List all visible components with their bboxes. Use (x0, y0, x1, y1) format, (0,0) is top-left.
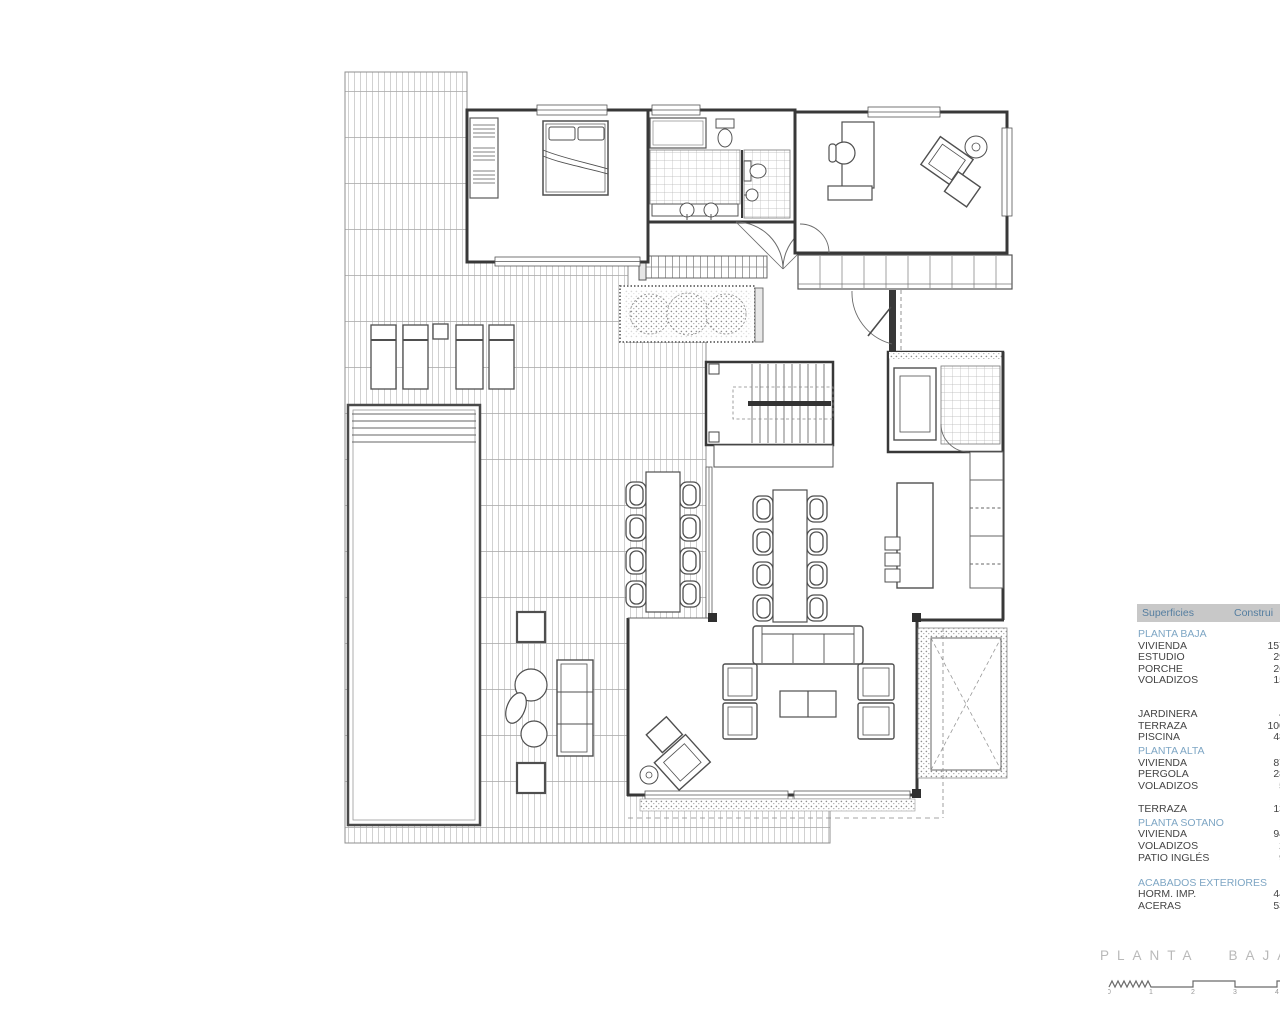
double-bed (543, 121, 608, 195)
scale-number: 4 (1275, 989, 1279, 996)
surface-value: 9 (1137, 853, 1280, 865)
toilet (716, 119, 734, 147)
swimming-pool (348, 405, 480, 825)
surfaces-item-row: TERRAZA13 (1137, 804, 1280, 816)
gate-door-arc (852, 291, 892, 344)
pergola-walkway-strip (639, 254, 767, 280)
surfaces-item-row: VOLADIZOS2 (1137, 841, 1280, 853)
surfaces-spacer-row (1137, 864, 1280, 875)
surface-value: 48 (1137, 732, 1280, 744)
surfaces-col-header: Superficies (1142, 604, 1234, 622)
pantry-laundry (888, 352, 1003, 452)
kitchen-counter (970, 452, 1003, 588)
surfaces-rows: PLANTA BAJAVIVIENDA157ESTUDIO29PORCHE26V… (1137, 629, 1280, 912)
reading-chair (640, 717, 710, 790)
porch-strip (798, 255, 1012, 289)
surfaces-item-row: JARDINERA4 (1137, 709, 1280, 721)
surface-value: 13 (1137, 804, 1280, 816)
surfaces-section-row: PLANTA BAJA (1137, 629, 1280, 641)
surface-label: PLANTA BAJA (1138, 629, 1207, 641)
graphic-scale-bar: 01234 (1108, 976, 1280, 1002)
scale-number: 1 (1149, 989, 1153, 996)
surfaces-item-row: ACERAS53 (1137, 901, 1280, 913)
surfaces-item-row: VOLADIZOS5 (1137, 781, 1280, 793)
surface-value: 5 (1137, 781, 1280, 793)
kitchen-island (885, 483, 933, 588)
surfaces-spacer-row (1137, 687, 1280, 698)
surface-value: 4 (1137, 709, 1280, 721)
dining-set (753, 490, 827, 622)
page: Superficies Construi PLANTA BAJAVIVIENDA… (0, 0, 1280, 1024)
outdoor-dining-table (646, 472, 680, 612)
surface-value: 53 (1137, 901, 1280, 913)
scale-number: 0 (1108, 989, 1111, 996)
floor-plan-drawing (0, 0, 1280, 1024)
surfaces-table-header: Superficies Construi (1137, 604, 1280, 622)
desk-chair (829, 142, 855, 164)
surfaces-spacer-row (1137, 793, 1280, 804)
sidewalk-strip (640, 799, 915, 811)
patio-void-x (918, 628, 1007, 818)
coffee-table (780, 691, 836, 717)
built-col-header: Construi (1234, 604, 1280, 622)
scale-bar-drawing (1108, 976, 1280, 989)
living-windows (645, 791, 910, 799)
bedroom-suite-block (467, 105, 830, 269)
sofa (753, 626, 863, 664)
wardrobe (470, 118, 498, 198)
glass-wall-west (706, 467, 712, 618)
scale-number: 3 (1233, 989, 1237, 996)
surfaces-table: Superficies Construi PLANTA BAJAVIVIENDA… (1137, 604, 1280, 912)
surfaces-item-row: PATIO INGLÉS9 (1137, 853, 1280, 865)
staircase (706, 362, 833, 467)
appliance (894, 368, 936, 440)
surface-value: 15 (1137, 675, 1280, 687)
dining-table (773, 490, 807, 622)
surface-value: 2 (1137, 841, 1280, 853)
surfaces-item-row: PISCINA48 (1137, 732, 1280, 744)
entry-court (852, 290, 901, 352)
surfaces-item-row: VOLADIZOS15 (1137, 675, 1280, 687)
planter-shrubs (630, 293, 746, 335)
study-block (795, 107, 1012, 289)
plan-title: PLANTA BAJA (1100, 948, 1280, 963)
scale-number: 2 (1191, 989, 1195, 996)
gate-wall (889, 290, 896, 352)
jardinera-planter (620, 286, 763, 342)
